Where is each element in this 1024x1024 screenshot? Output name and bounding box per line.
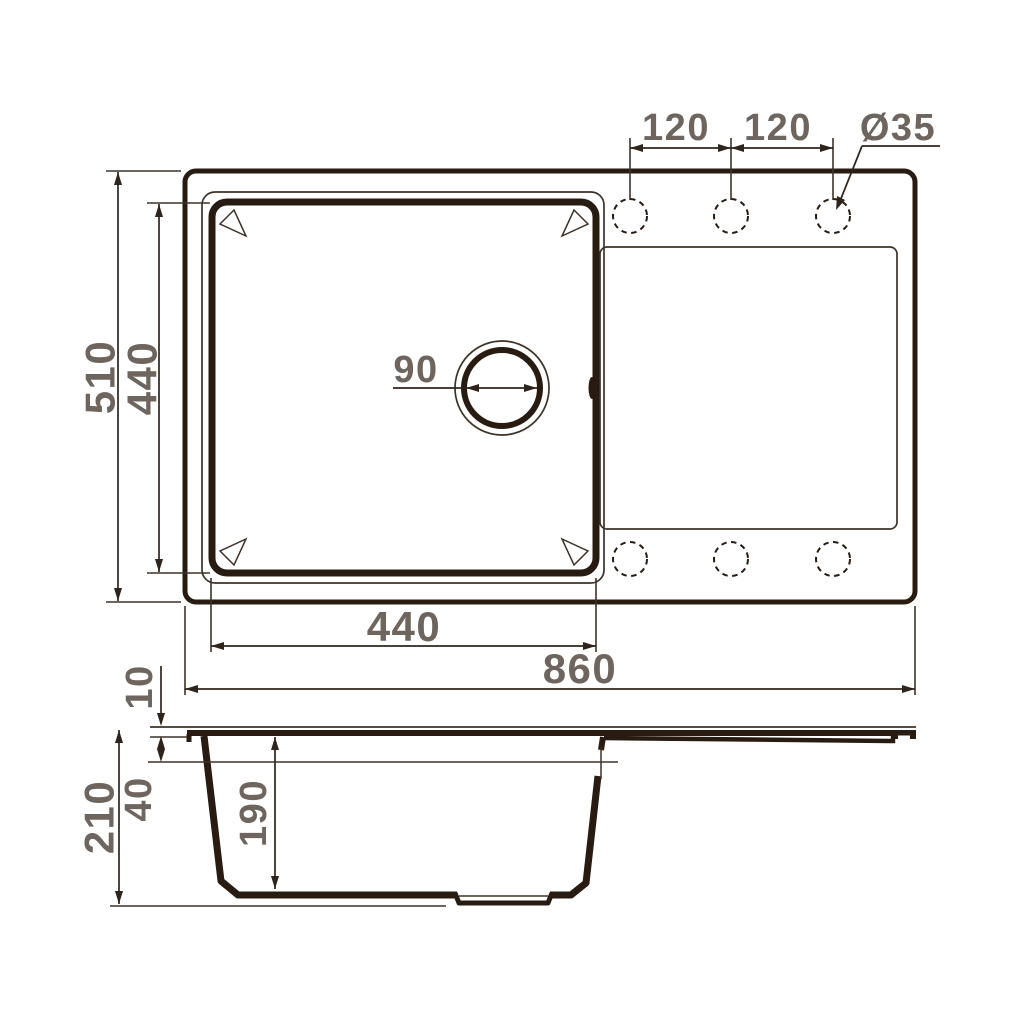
dim-label-overall-depth: 510	[77, 340, 124, 415]
top-view	[185, 171, 915, 602]
dim-label-overall-length: 860	[543, 645, 618, 692]
dim-label-bowl-inner-depth: 190	[233, 779, 275, 847]
side-right-notch	[898, 736, 910, 740]
side-drainboard-surface	[604, 736, 893, 741]
side-view	[110, 727, 916, 906]
side-bowl-right-wall-lower	[550, 776, 598, 895]
dim-label-bowl-depth: 440	[119, 341, 166, 416]
dim-label-bowl-width: 440	[367, 603, 442, 650]
side-drain-recess	[455, 893, 552, 903]
dim-label-drain-diameter: 90	[393, 349, 438, 391]
sink-technical-drawing: 510 440 120 120 Ø35 90 440 860 10 210 40…	[0, 0, 1024, 1024]
dim-label-hole-diameter: Ø35	[860, 107, 936, 149]
drawing-svg: 510 440 120 120 Ø35 90 440 860 10 210 40…	[0, 0, 1024, 1024]
dim-label-rim-height: 10	[119, 664, 161, 709]
sink-outline-top-view	[185, 171, 915, 602]
overflow-mark	[589, 377, 596, 399]
dim-label-hole-spacing-right: 120	[744, 107, 812, 149]
dim-label-overall-height: 210	[76, 780, 123, 855]
dim-label-hole-spacing-left: 120	[642, 107, 710, 149]
dim-label-upper-depth: 40	[118, 776, 160, 821]
